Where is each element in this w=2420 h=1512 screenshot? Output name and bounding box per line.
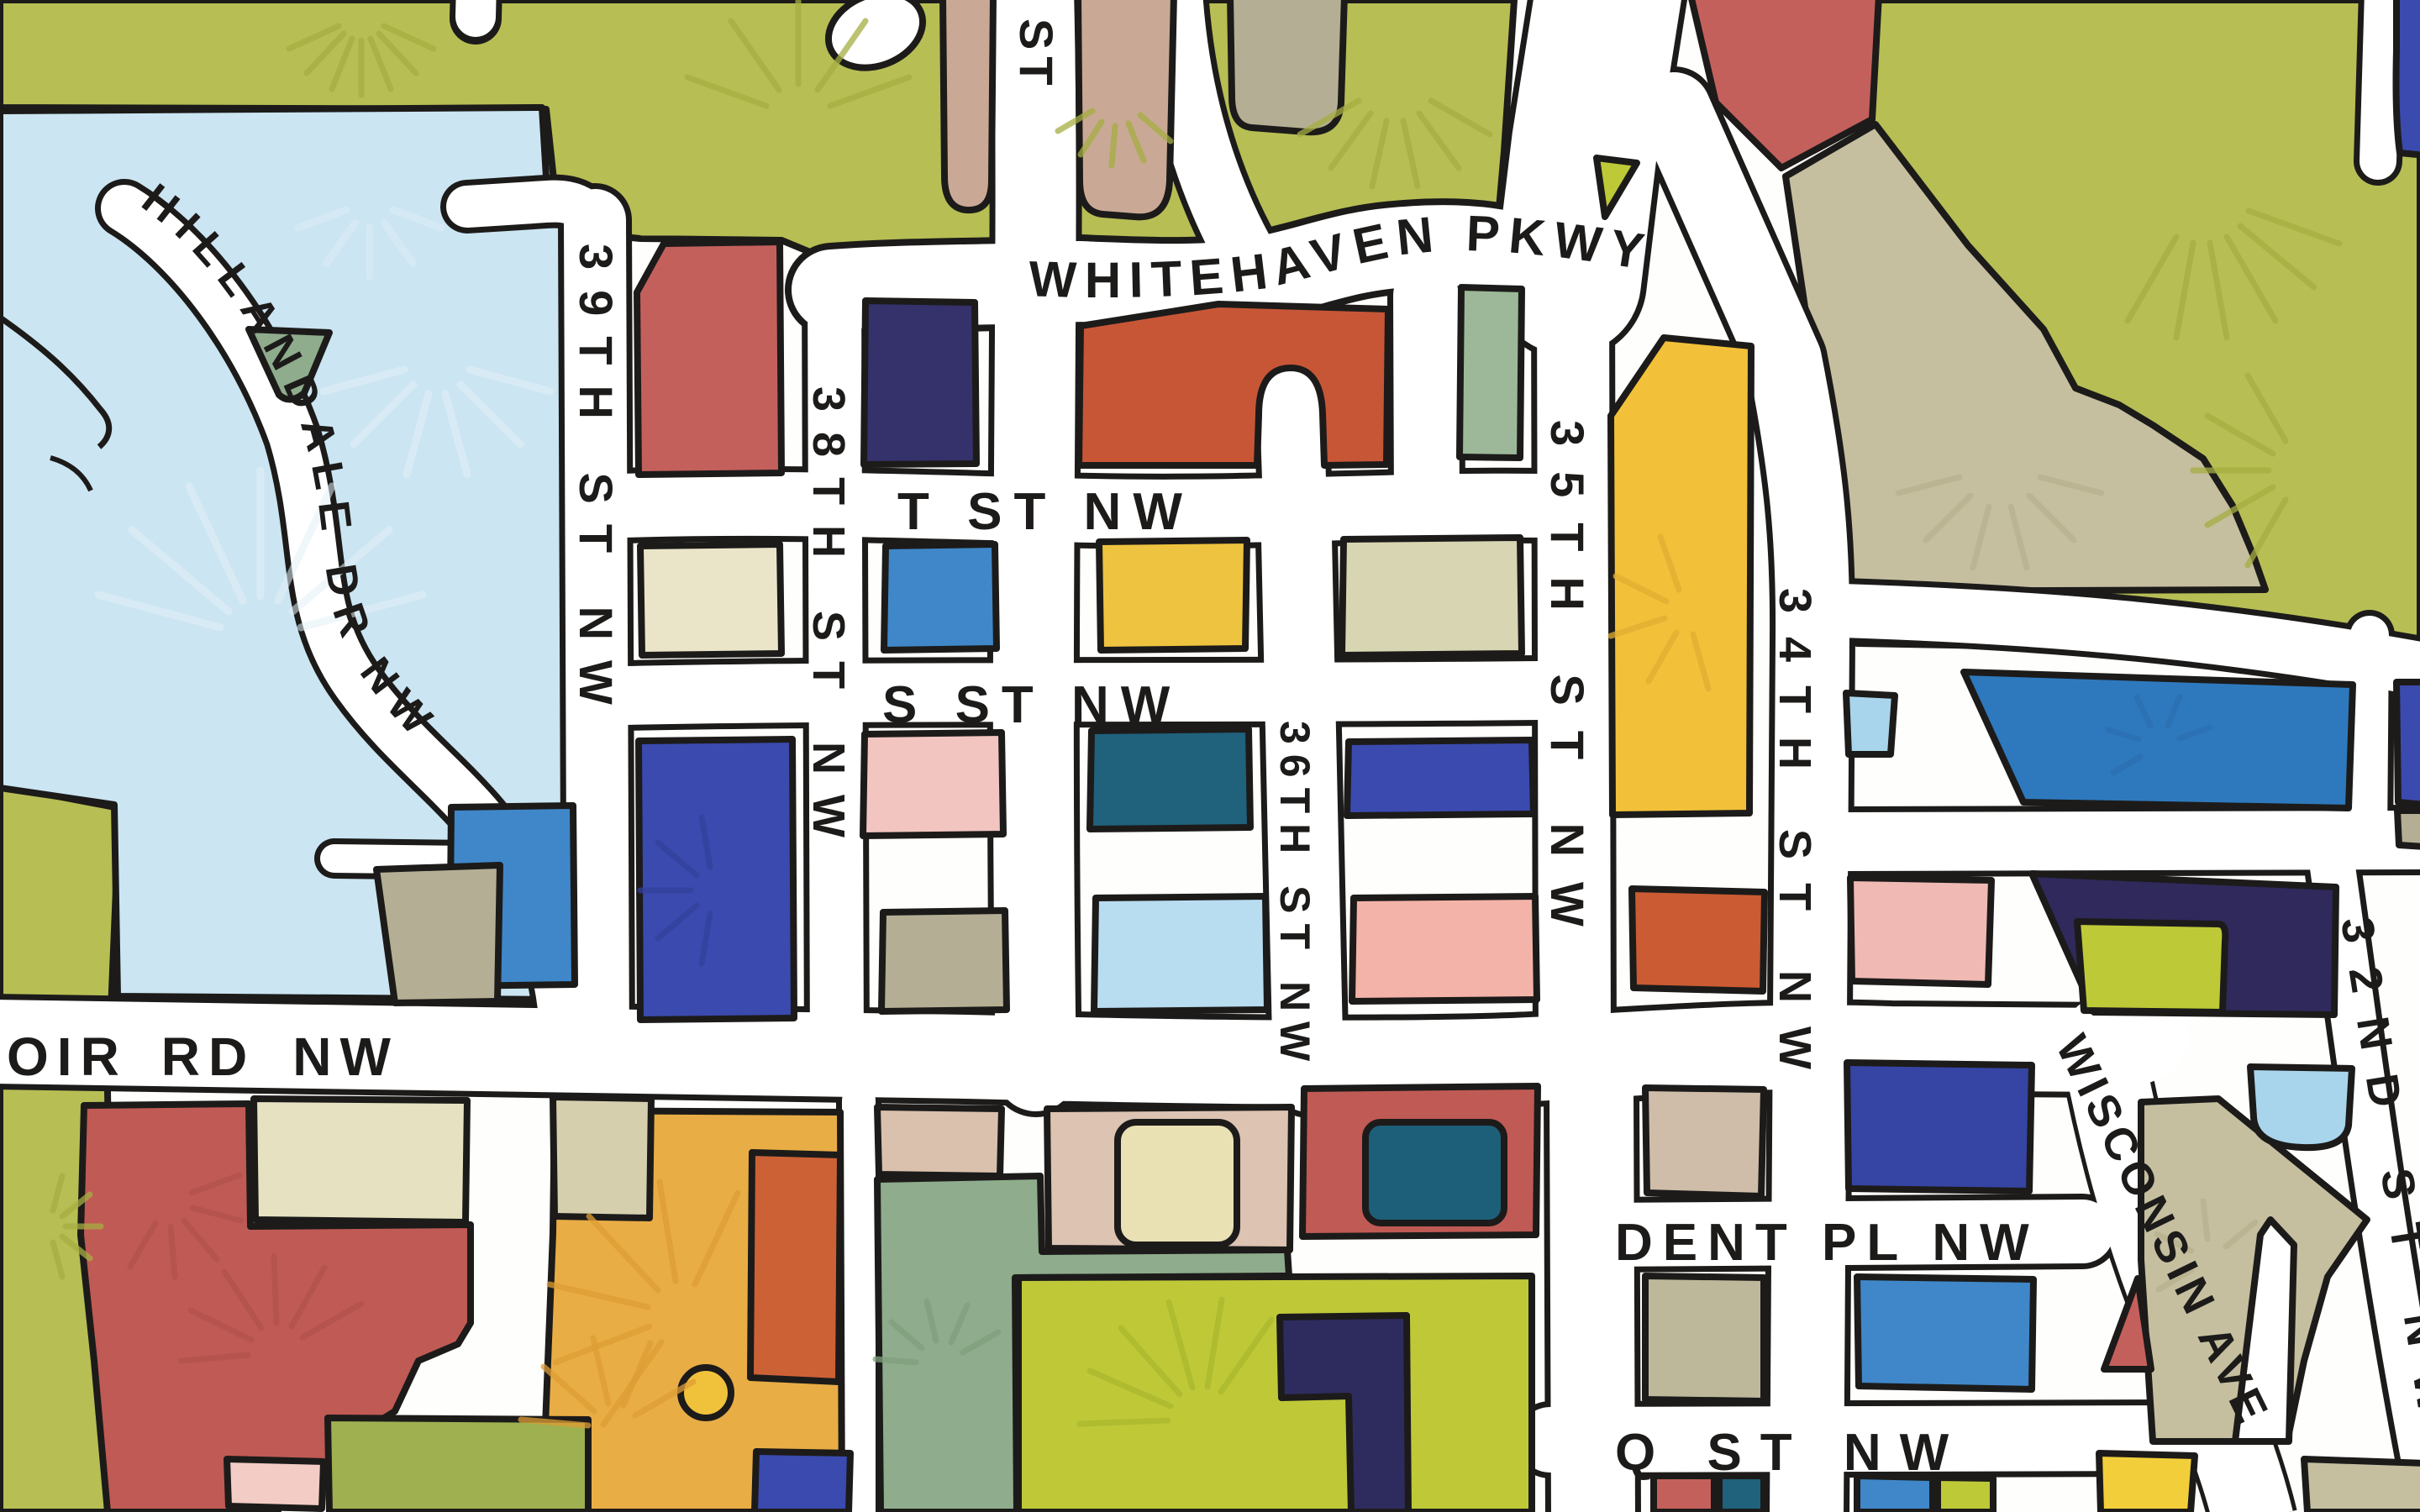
svg-text:ST: ST: [1010, 18, 1063, 92]
svg-text:36TH ST NW: 36TH ST NW: [1271, 721, 1318, 1071]
svg-text:38TH ST NW: 38TH ST NW: [803, 386, 854, 858]
svg-text:S ST NW: S ST NW: [882, 676, 1181, 734]
svg-text:35TH ST NW: 35TH ST NW: [1541, 420, 1594, 952]
svg-text:T ST NW: T ST NW: [897, 483, 1194, 541]
svg-text:34TH ST NW: 34TH ST NW: [1770, 588, 1820, 1093]
svg-text:39TH ST NW: 39TH ST NW: [570, 244, 623, 725]
svg-text:Q ST NW: Q ST NW: [1615, 1424, 1967, 1482]
svg-text:OIRRDNW: OIRRDNW: [7, 1026, 399, 1087]
svg-text:DENT PL NW: DENT PL NW: [1615, 1214, 2039, 1272]
